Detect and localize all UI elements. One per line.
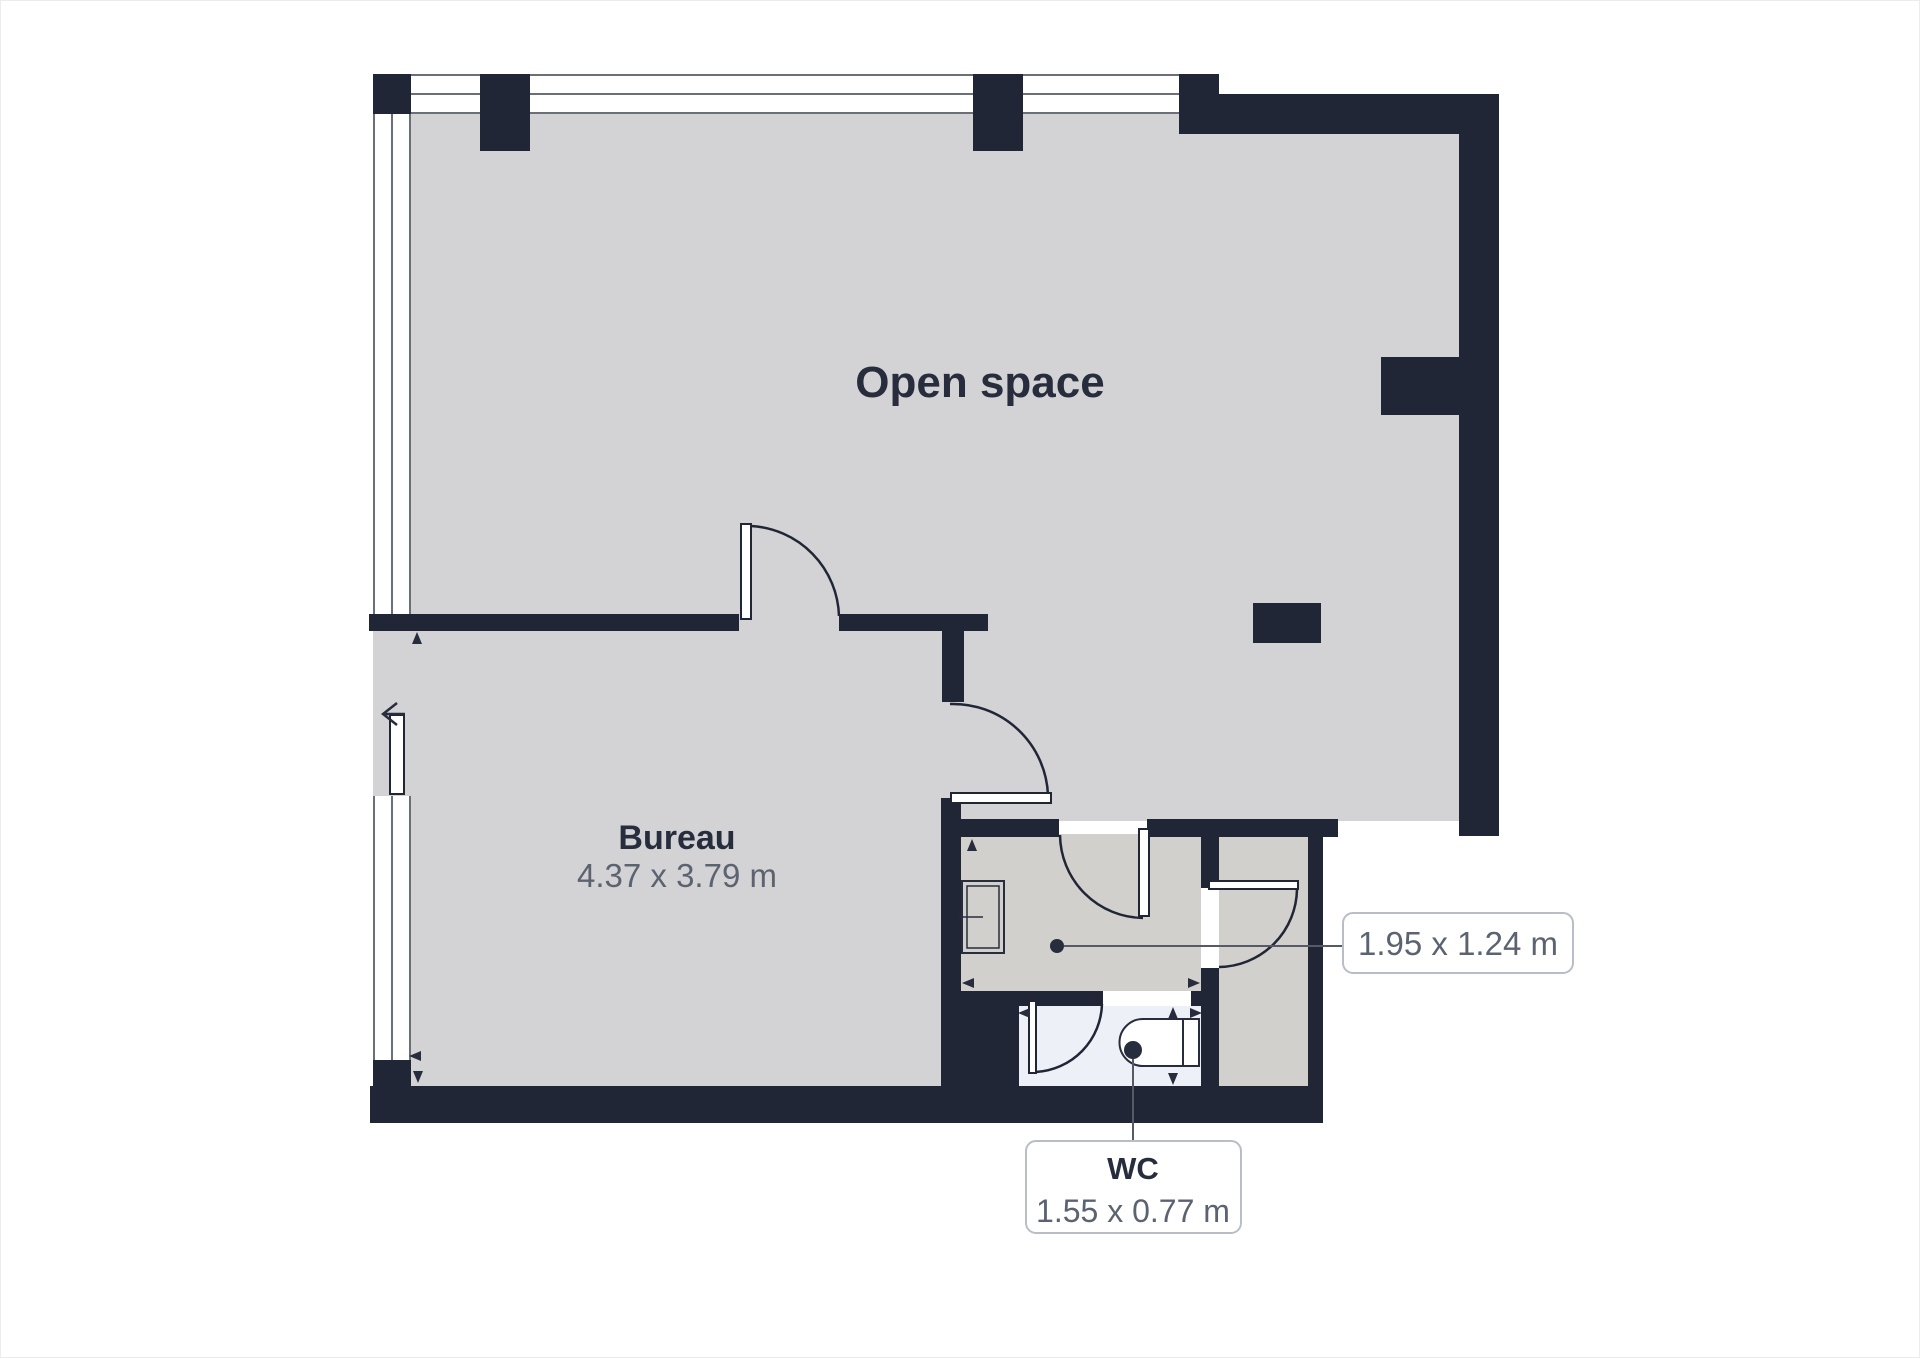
pillar-top-1 xyxy=(480,74,530,151)
small-room-floor xyxy=(1219,834,1308,1086)
wall-bureau-top-right xyxy=(839,614,988,631)
bureau-label: Bureau xyxy=(618,819,735,857)
column-block xyxy=(1253,603,1321,643)
pillar-top-2 xyxy=(973,74,1023,151)
wall-stub-small-room-bottom xyxy=(1201,968,1219,1086)
wall-right xyxy=(1459,94,1499,836)
wall-wc-left-mass xyxy=(941,991,1019,1086)
hallway-floor xyxy=(961,834,1201,991)
wall-corner-top-left xyxy=(373,74,411,114)
floors xyxy=(373,114,1459,1086)
wc-dimension-dot xyxy=(1124,1041,1142,1059)
wall-stub-small-room-top xyxy=(1201,834,1219,888)
wall-bureau-top-left xyxy=(369,614,739,631)
hallway-dimensions: 1.95 x 1.24 m xyxy=(1358,925,1558,962)
wall-stub-open-space xyxy=(942,631,964,702)
left-window-upper xyxy=(373,114,411,614)
open-space-label: Open space xyxy=(855,358,1104,407)
bureau-dimensions: 4.37 x 3.79 m xyxy=(577,857,777,894)
wall-wc-top-stub xyxy=(1191,991,1219,1006)
floorplan-page: Open space Bureau 4.37 x 3.79 m 1.95 x 1… xyxy=(0,0,1920,1358)
wall-bottom-left-column xyxy=(373,1060,411,1086)
wall-top-right xyxy=(1179,94,1499,134)
wc-callout[interactable]: WC 1.55 x 0.77 m xyxy=(1026,1141,1241,1233)
wall-small-room-right xyxy=(1308,834,1323,1123)
floorplan-canvas: Open space Bureau 4.37 x 3.79 m 1.95 x 1… xyxy=(1,1,1920,1359)
pillar-right-inner xyxy=(1381,357,1459,415)
wc-dimensions: 1.55 x 0.77 m xyxy=(1036,1193,1230,1229)
wc-label: WC xyxy=(1107,1151,1159,1186)
wall-bottom xyxy=(370,1086,1323,1123)
wall-hallway-top-1 xyxy=(961,819,1059,837)
hallway-dimension-callout[interactable]: 1.95 x 1.24 m xyxy=(1343,913,1573,973)
hallway-dimension-dot xyxy=(1050,939,1064,953)
left-window-lower xyxy=(373,796,411,1060)
